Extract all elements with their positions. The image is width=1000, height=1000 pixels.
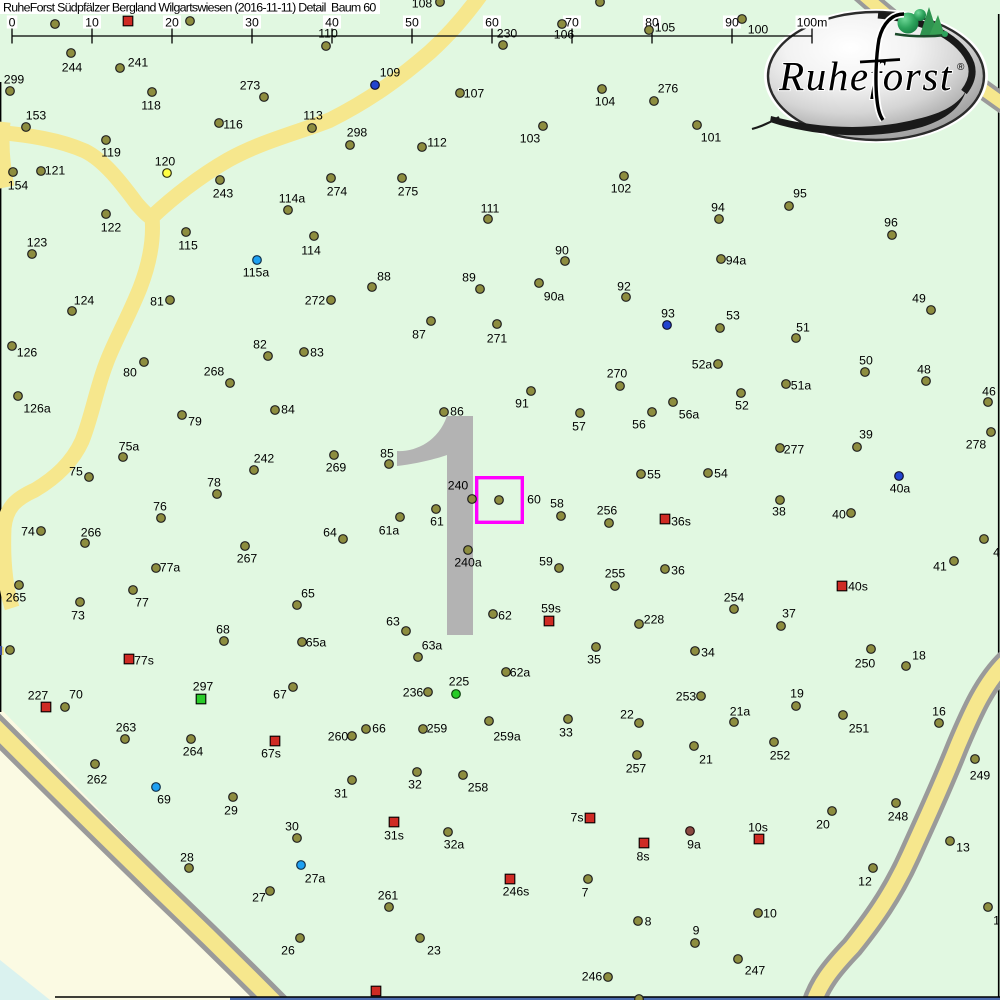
svg-text:65: 65 bbox=[301, 586, 315, 600]
svg-text:49: 49 bbox=[912, 291, 926, 305]
svg-text:116: 116 bbox=[223, 117, 243, 131]
svg-text:243: 243 bbox=[213, 186, 234, 200]
svg-text:108: 108 bbox=[412, 0, 433, 10]
svg-text:270: 270 bbox=[607, 366, 628, 380]
svg-text:61a: 61a bbox=[379, 523, 400, 537]
svg-text:77s: 77s bbox=[134, 653, 154, 667]
svg-text:265: 265 bbox=[6, 590, 27, 604]
svg-text:114a: 114a bbox=[279, 191, 306, 205]
svg-text:7s: 7s bbox=[571, 810, 584, 824]
svg-text:84: 84 bbox=[281, 402, 295, 416]
svg-text:227: 227 bbox=[28, 688, 49, 702]
svg-text:63a: 63a bbox=[422, 638, 443, 652]
svg-text:83: 83 bbox=[310, 345, 324, 359]
svg-text:81: 81 bbox=[150, 294, 164, 308]
svg-text:34: 34 bbox=[701, 645, 715, 659]
svg-text:64: 64 bbox=[323, 525, 337, 539]
svg-text:299: 299 bbox=[4, 72, 25, 86]
svg-text:247: 247 bbox=[745, 963, 766, 977]
svg-text:268: 268 bbox=[204, 364, 225, 378]
svg-text:272: 272 bbox=[305, 293, 326, 307]
svg-text:87: 87 bbox=[412, 327, 426, 341]
svg-text:244: 244 bbox=[62, 60, 83, 74]
svg-text:21a: 21a bbox=[730, 704, 751, 718]
svg-text:104: 104 bbox=[595, 94, 616, 108]
svg-text:242: 242 bbox=[254, 451, 275, 465]
svg-text:96: 96 bbox=[884, 215, 898, 229]
svg-text:63: 63 bbox=[386, 614, 400, 628]
svg-text:9: 9 bbox=[693, 923, 700, 937]
svg-text:266: 266 bbox=[81, 525, 102, 539]
svg-text:57: 57 bbox=[572, 419, 586, 433]
svg-text:70: 70 bbox=[69, 687, 83, 701]
svg-text:110: 110 bbox=[318, 26, 338, 40]
svg-text:20: 20 bbox=[165, 16, 179, 30]
svg-text:153: 153 bbox=[26, 108, 47, 122]
svg-text:59s: 59s bbox=[541, 601, 561, 615]
svg-text:254: 254 bbox=[724, 590, 745, 604]
svg-text:51: 51 bbox=[796, 320, 810, 334]
svg-text:111: 111 bbox=[481, 201, 500, 215]
svg-text:112: 112 bbox=[427, 135, 447, 149]
svg-text:50: 50 bbox=[405, 16, 419, 30]
svg-text:75: 75 bbox=[69, 464, 83, 478]
svg-text:46: 46 bbox=[982, 384, 996, 398]
svg-text:36s: 36s bbox=[671, 514, 691, 528]
svg-text:30: 30 bbox=[285, 819, 299, 833]
svg-text:92: 92 bbox=[617, 279, 631, 293]
svg-text:26: 26 bbox=[281, 943, 295, 957]
svg-text:251: 251 bbox=[849, 721, 870, 735]
svg-text:122: 122 bbox=[101, 220, 122, 234]
svg-text:123: 123 bbox=[27, 235, 48, 249]
svg-text:47: 47 bbox=[993, 545, 1000, 559]
svg-text:16: 16 bbox=[932, 704, 946, 718]
svg-text:55: 55 bbox=[647, 467, 661, 481]
svg-text:119: 119 bbox=[101, 145, 121, 159]
svg-text:271: 271 bbox=[487, 331, 508, 345]
svg-text:65a: 65a bbox=[306, 635, 327, 649]
svg-text:0: 0 bbox=[9, 16, 16, 30]
svg-text:59: 59 bbox=[539, 554, 553, 568]
svg-text:48: 48 bbox=[917, 362, 931, 376]
svg-text:62a: 62a bbox=[510, 665, 531, 679]
svg-text:228: 228 bbox=[644, 612, 665, 626]
svg-text:13: 13 bbox=[956, 840, 970, 854]
svg-text:261: 261 bbox=[378, 888, 399, 902]
svg-text:106: 106 bbox=[554, 27, 575, 41]
svg-text:94a: 94a bbox=[726, 253, 747, 267]
svg-text:252: 252 bbox=[770, 748, 791, 762]
svg-text:248: 248 bbox=[888, 809, 909, 823]
svg-text:114: 114 bbox=[301, 243, 321, 257]
svg-text:91: 91 bbox=[515, 396, 529, 410]
svg-text:258: 258 bbox=[468, 780, 489, 794]
svg-text:10: 10 bbox=[763, 906, 777, 920]
svg-text:53: 53 bbox=[726, 308, 740, 322]
svg-text:105: 105 bbox=[655, 20, 676, 34]
svg-text:236: 236 bbox=[403, 685, 424, 699]
svg-text:31s: 31s bbox=[384, 828, 404, 842]
svg-text:78: 78 bbox=[207, 475, 221, 489]
svg-text:23: 23 bbox=[427, 943, 441, 957]
svg-text:36: 36 bbox=[671, 563, 685, 577]
svg-text:52: 52 bbox=[735, 398, 749, 412]
svg-text:94: 94 bbox=[711, 200, 725, 214]
svg-text:267: 267 bbox=[237, 551, 258, 565]
svg-text:276: 276 bbox=[658, 81, 679, 95]
svg-text:256: 256 bbox=[597, 503, 618, 517]
svg-text:126: 126 bbox=[17, 345, 38, 359]
svg-text:69: 69 bbox=[157, 792, 171, 806]
svg-text:28: 28 bbox=[180, 850, 194, 864]
svg-text:40a: 40a bbox=[890, 481, 911, 495]
svg-text:68: 68 bbox=[216, 622, 230, 636]
svg-text:33: 33 bbox=[559, 725, 573, 739]
svg-text:277: 277 bbox=[784, 442, 805, 456]
svg-text:8s: 8s bbox=[637, 849, 650, 863]
svg-text:74: 74 bbox=[21, 524, 35, 538]
svg-text:259a: 259a bbox=[493, 729, 521, 743]
svg-text:35: 35 bbox=[587, 652, 601, 666]
svg-text:298: 298 bbox=[347, 125, 368, 139]
svg-text:9a: 9a bbox=[687, 837, 701, 851]
svg-text:103: 103 bbox=[520, 131, 541, 145]
svg-text:38: 38 bbox=[772, 504, 786, 518]
svg-text:10: 10 bbox=[85, 16, 99, 30]
svg-text:100m: 100m bbox=[797, 16, 828, 30]
svg-text:109: 109 bbox=[380, 65, 401, 79]
svg-text:240: 240 bbox=[448, 478, 469, 492]
svg-text:62: 62 bbox=[498, 608, 512, 622]
svg-text:12: 12 bbox=[858, 874, 872, 888]
svg-text:90a: 90a bbox=[544, 289, 565, 303]
svg-text:56a: 56a bbox=[679, 407, 700, 421]
svg-text:241: 241 bbox=[128, 55, 149, 69]
svg-text:10s: 10s bbox=[748, 820, 768, 834]
svg-text:21: 21 bbox=[699, 752, 713, 766]
svg-text:262: 262 bbox=[87, 772, 108, 786]
svg-text:52a: 52a bbox=[692, 357, 713, 371]
svg-text:93: 93 bbox=[661, 306, 675, 320]
svg-text:255: 255 bbox=[605, 566, 626, 580]
svg-text:246: 246 bbox=[582, 969, 603, 983]
svg-text:51a: 51a bbox=[791, 378, 812, 392]
svg-text:18: 18 bbox=[912, 648, 926, 662]
svg-text:264: 264 bbox=[183, 744, 204, 758]
svg-text:260: 260 bbox=[328, 729, 349, 743]
svg-text:154: 154 bbox=[8, 178, 29, 192]
svg-text:259: 259 bbox=[427, 721, 448, 735]
svg-text:77: 77 bbox=[135, 595, 149, 609]
svg-text:118: 118 bbox=[141, 98, 161, 112]
svg-text:240a: 240a bbox=[454, 555, 482, 569]
svg-text:82: 82 bbox=[253, 337, 267, 351]
svg-text:86: 86 bbox=[450, 404, 464, 418]
svg-text:73: 73 bbox=[71, 608, 85, 622]
svg-text:56: 56 bbox=[632, 417, 646, 431]
svg-text:27a: 27a bbox=[305, 871, 326, 885]
svg-text:60: 60 bbox=[527, 492, 541, 506]
svg-text:30: 30 bbox=[245, 16, 259, 30]
svg-text:95: 95 bbox=[793, 186, 807, 200]
svg-text:20: 20 bbox=[816, 817, 830, 831]
svg-text:269: 269 bbox=[326, 460, 347, 474]
svg-text:50: 50 bbox=[859, 353, 873, 367]
svg-text:113: 113 bbox=[303, 108, 323, 122]
svg-text:90: 90 bbox=[555, 243, 569, 257]
svg-text:14: 14 bbox=[993, 913, 1000, 927]
svg-text:75a: 75a bbox=[119, 439, 140, 453]
svg-text:89: 89 bbox=[462, 270, 476, 284]
svg-text:250: 250 bbox=[855, 656, 876, 670]
svg-text:101: 101 bbox=[701, 130, 722, 144]
svg-text:29: 29 bbox=[224, 803, 238, 817]
svg-text:61: 61 bbox=[430, 514, 444, 528]
svg-text:115: 115 bbox=[178, 238, 198, 252]
svg-text:8: 8 bbox=[645, 914, 652, 928]
svg-text:22: 22 bbox=[620, 707, 634, 721]
svg-text:278: 278 bbox=[966, 437, 987, 451]
svg-text:79: 79 bbox=[188, 414, 202, 428]
svg-text:77a: 77a bbox=[160, 560, 181, 574]
svg-text:41: 41 bbox=[933, 559, 947, 573]
svg-text:27: 27 bbox=[252, 890, 266, 904]
svg-text:107: 107 bbox=[464, 86, 485, 100]
svg-text:40: 40 bbox=[832, 507, 846, 521]
svg-text:230: 230 bbox=[497, 26, 518, 40]
svg-text:274: 274 bbox=[327, 184, 348, 198]
svg-text:263: 263 bbox=[116, 720, 137, 734]
svg-text:121: 121 bbox=[45, 163, 66, 177]
svg-text:54: 54 bbox=[714, 466, 728, 480]
svg-text:58: 58 bbox=[550, 496, 564, 510]
svg-text:257: 257 bbox=[626, 761, 647, 775]
svg-text:67: 67 bbox=[273, 687, 287, 701]
svg-text:88: 88 bbox=[377, 269, 391, 283]
svg-text:80: 80 bbox=[123, 365, 137, 379]
svg-text:124: 124 bbox=[74, 293, 95, 307]
svg-text:40s: 40s bbox=[848, 579, 868, 593]
svg-text:297: 297 bbox=[193, 679, 214, 693]
svg-text:102: 102 bbox=[611, 181, 632, 195]
svg-text:225: 225 bbox=[449, 674, 470, 688]
svg-text:31: 31 bbox=[334, 786, 348, 800]
svg-text:®: ® bbox=[957, 62, 965, 73]
svg-text:67s: 67s bbox=[261, 746, 281, 760]
svg-text:273: 273 bbox=[240, 78, 261, 92]
svg-text:126a: 126a bbox=[23, 401, 51, 415]
svg-text:19: 19 bbox=[790, 686, 804, 700]
svg-text:249: 249 bbox=[970, 768, 991, 782]
svg-text:RuheForst Südpfälzer Bergland: RuheForst Südpfälzer Bergland Wilgartswi… bbox=[3, 1, 376, 15]
svg-text:76: 76 bbox=[153, 499, 167, 513]
svg-text:253: 253 bbox=[676, 689, 697, 703]
svg-text:100: 100 bbox=[748, 22, 769, 36]
svg-text:7: 7 bbox=[582, 885, 589, 899]
svg-text:275: 275 bbox=[398, 184, 419, 198]
svg-text:37: 37 bbox=[782, 606, 796, 620]
svg-text:120: 120 bbox=[155, 154, 176, 168]
svg-text:32: 32 bbox=[408, 777, 422, 791]
svg-text:66: 66 bbox=[372, 721, 386, 735]
svg-text:115a: 115a bbox=[243, 265, 270, 279]
svg-text:90: 90 bbox=[725, 16, 739, 30]
svg-text:Ruheforst: Ruheforst bbox=[778, 53, 953, 99]
svg-text:39: 39 bbox=[859, 427, 873, 441]
svg-text:85: 85 bbox=[380, 446, 394, 460]
svg-text:246s: 246s bbox=[503, 884, 530, 898]
svg-text:32a: 32a bbox=[444, 837, 465, 851]
